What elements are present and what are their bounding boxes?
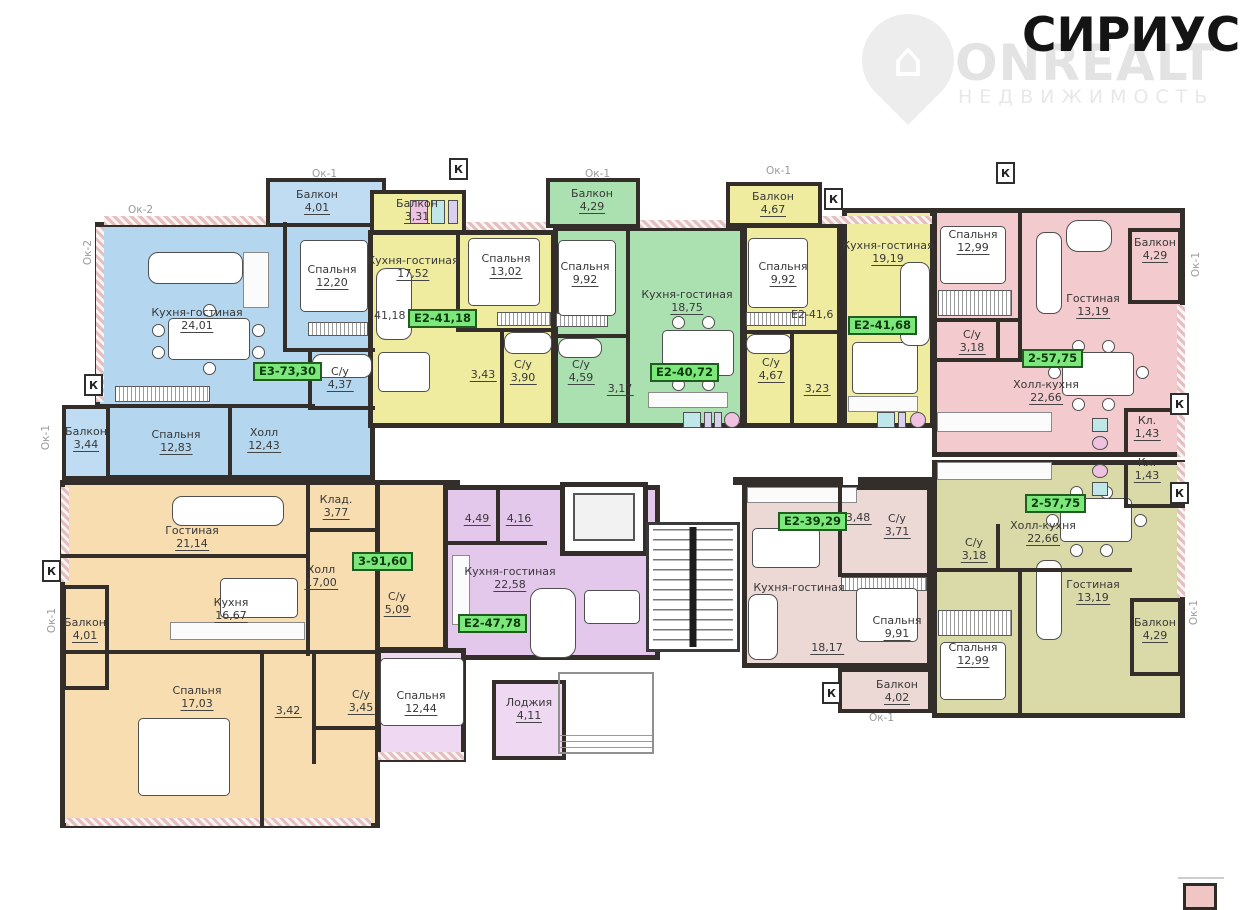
wardrobe [938, 610, 1012, 636]
wall [996, 322, 1000, 360]
room-label-hall-kitchen: Холл-кухня22,66 [1010, 519, 1076, 546]
apartment-badge-light-pink: Е2-39,29 [778, 512, 847, 531]
room-label-bathroom: С/у3,18 [959, 328, 986, 355]
chair [672, 316, 685, 329]
room-label-bathroom: С/у3,71 [884, 512, 911, 539]
chair [152, 346, 165, 359]
room-label-balcony: Балкон4,01 [64, 616, 106, 643]
room-label-kitchen-living: Кухня-гостиная22,58 [464, 565, 555, 592]
room-label-bathroom: С/у4,37 [327, 365, 354, 392]
wall [838, 573, 932, 577]
vent-marker-k: К [42, 560, 61, 582]
room-label-bedroom: Спальня9,92 [759, 260, 808, 287]
room-label-closet: Кл.1,43 [1134, 414, 1161, 441]
armchair [1066, 220, 1112, 252]
watermark-subtitle: НЕДВИЖИМОСТЬ [958, 86, 1214, 108]
room-label-balcony: Балкон4,67 [752, 190, 794, 217]
wall [932, 318, 1022, 322]
washer-icon [1092, 464, 1108, 478]
cabinet-icon [448, 200, 458, 224]
room-label-living: Гостиная13,19 [1066, 578, 1120, 605]
wall [260, 654, 264, 828]
window-label: Ок-1 [1188, 600, 1200, 625]
wall [932, 568, 1132, 572]
room-label-balcony: Балкон4,29 [571, 187, 613, 214]
floor-plan: ⌂ ONREALT НЕДВИЖИМОСТЬ СИРИУС [0, 0, 1251, 910]
chair [252, 324, 265, 337]
bed [138, 718, 230, 796]
apartment-badge-yellow-c: Е2-41,68 [848, 316, 917, 335]
cabinet-icon [704, 412, 712, 428]
wardrobe [308, 322, 368, 336]
stair-divider [690, 527, 697, 647]
chair [1102, 340, 1115, 353]
window-label: Ок-1 [766, 165, 791, 177]
bathtub [504, 332, 552, 354]
wall [1124, 460, 1128, 508]
exterior-wall-hatch [66, 818, 371, 826]
cabinet-icon [898, 412, 906, 428]
wall [996, 524, 1000, 570]
apartment-badge-yellow-a: Е2-41,18 [408, 309, 477, 328]
sofa [1036, 560, 1062, 640]
sofa [748, 594, 778, 660]
room-label-bathroom: С/у3,18 [961, 536, 988, 563]
wall [228, 404, 232, 480]
room-label-bedroom: Спальня13,02 [482, 252, 531, 279]
vent-marker-k: К [822, 682, 841, 704]
room-label-hall: Холл17,00 [304, 563, 338, 590]
washer-icon [910, 412, 926, 428]
room-label-kitchen-living-area: 18,17 [810, 641, 844, 655]
wall [283, 222, 287, 352]
bathtub [746, 334, 792, 354]
exterior-wall-hatch [1177, 305, 1185, 457]
room-label-hall: 3,43 [470, 368, 497, 382]
apartment-badge-green: Е2-40,72 [650, 363, 719, 382]
vent-marker-k: К [1170, 482, 1189, 504]
vent-marker-k: К [84, 374, 103, 396]
wall [308, 406, 375, 410]
room-label-bathroom: С/у5,09 [384, 590, 411, 617]
exterior-wall-hatch [640, 220, 726, 228]
wall [60, 650, 380, 654]
room-label-balcony: Балкон4,29 [1134, 616, 1176, 643]
wall [60, 554, 310, 558]
wall [283, 348, 375, 352]
dining-table [378, 352, 430, 392]
room-label-bedroom: Спальня9,91 [873, 614, 922, 641]
room-label-living: Гостиная13,19 [1066, 292, 1120, 319]
wardrobe [497, 312, 551, 326]
room-label-hall: 3,17 [607, 382, 634, 396]
chair [1134, 514, 1147, 527]
apartment-badge-pink: 2-57,75 [1022, 349, 1083, 368]
house-icon: ⌂ [862, 14, 954, 106]
room-label-bedroom: Спальня12,44 [397, 689, 446, 716]
wall [733, 477, 843, 485]
exterior-wall-hatch [378, 752, 464, 760]
sofa [172, 496, 284, 526]
room-label-bedroom: Спальня12,99 [949, 228, 998, 255]
room-label-kitchen-living: Кухня-гостиная19,19 [842, 239, 933, 266]
sink-icon [1092, 418, 1108, 432]
chair [1136, 366, 1149, 379]
wall [310, 528, 378, 532]
exterior-wall-hatch [104, 216, 266, 225]
room-label-kitchen-living: Кухня-гостиная18,75 [641, 288, 732, 315]
room-label-bathroom: С/у4,59 [568, 358, 595, 385]
apartment-badge-blue: Е3-73,30 [253, 362, 322, 381]
elevator-cabin [573, 493, 635, 541]
wall [312, 654, 316, 764]
room-label-hall: 3,48 [845, 511, 872, 525]
window-label: Ок-1 [312, 168, 337, 180]
room-label-bedroom: Спальня9,92 [561, 260, 610, 287]
room-label-bedroom: Спальня17,03 [173, 684, 222, 711]
wall [496, 485, 500, 543]
dining-table [852, 342, 918, 394]
room-label-balcony: Балкон3,44 [65, 425, 107, 452]
vent-marker-k: К [824, 188, 843, 210]
apartment-badge-orange: 3-91,60 [352, 552, 413, 571]
room-label-living: Гостиная21,14 [165, 524, 219, 551]
window-label: Ок-1 [46, 608, 58, 633]
wall [312, 726, 375, 730]
room-label-hall: 4,49 [464, 512, 491, 526]
room-label-kitchen-living: Кухня-гостиная24,01 [151, 306, 242, 333]
entrance-porch [558, 672, 654, 754]
window-label: Ок-2 [128, 204, 153, 216]
wall [858, 477, 935, 485]
chair [1102, 398, 1115, 411]
room-label-bathroom: 4,16 [506, 512, 533, 526]
bathtub [558, 338, 602, 358]
room-label-hall: Холл12,43 [247, 426, 281, 453]
window-label: Ок-2 [82, 240, 94, 265]
sofa [530, 588, 576, 658]
wall [456, 328, 556, 332]
wall [500, 332, 504, 428]
window-label: Ок-1 [40, 425, 52, 450]
window-label: Ок-1 [585, 168, 610, 180]
cabinet-icon [714, 412, 722, 428]
wall [932, 358, 1022, 362]
stray-area-label: 41,18 [374, 309, 406, 322]
wall [1018, 208, 1022, 360]
chair [1100, 544, 1113, 557]
room-label-kitchen-living: Кухня-гостиная17,52 [367, 254, 458, 281]
stairwell [646, 522, 740, 652]
wall [95, 404, 315, 408]
wall [626, 226, 630, 428]
apartment-badge-olive: 2-57,75 [1025, 494, 1086, 513]
vent-marker-k: К [1170, 393, 1189, 415]
room-label-balcony: Балкон3,31 [396, 197, 438, 224]
chair [203, 362, 216, 375]
wall [443, 541, 547, 545]
room-label-kitchen: Кухня16,67 [214, 596, 249, 623]
room-label-loggia: Лоджия4,11 [506, 696, 552, 723]
chair [252, 346, 265, 359]
stray-apartment-label: Е2-41,6 [791, 308, 833, 321]
kitchen-counter [937, 462, 1052, 480]
room-label-bathroom: С/у3,45 [348, 688, 375, 715]
room-label-hall-kitchen: Холл-кухня22,66 [1013, 378, 1079, 405]
wall [1124, 504, 1185, 508]
kitchen-counter [937, 412, 1052, 432]
window-label: Ок-1 [869, 712, 894, 724]
room-label-wardrobe: 3,42 [275, 704, 302, 718]
exterior-wall-hatch [822, 216, 932, 224]
room-label-balcony: Балкон4,29 [1134, 236, 1176, 263]
wall [553, 334, 630, 338]
wall [838, 485, 842, 577]
watermark-pin-icon: ⌂ [843, 0, 973, 125]
wardrobe [115, 386, 210, 402]
room-label-bathroom: С/у4,67 [758, 356, 785, 383]
sink-icon [877, 412, 895, 428]
elevator-shaft [560, 482, 648, 556]
washer-icon [1092, 436, 1108, 450]
dining-table [752, 528, 820, 568]
washer-icon [724, 412, 740, 428]
sofa [1036, 232, 1062, 314]
wall [1124, 412, 1128, 457]
room-label-bathroom: С/у3,90 [510, 358, 537, 385]
dining-table [584, 590, 640, 624]
window-label: Ок-1 [1190, 252, 1202, 277]
vent-marker-k: К [449, 158, 468, 180]
room-label-bedroom: Спальня12,99 [949, 641, 998, 668]
wardrobe [938, 290, 1012, 316]
developer-logo: СИРИУС [1022, 8, 1240, 63]
vent-marker-k: К [996, 162, 1015, 184]
kitchen-counter [848, 396, 918, 412]
apartment-badge-purple: Е2-47,78 [458, 614, 527, 633]
cutoff-plan-fragment [1183, 883, 1217, 910]
room-label-bedroom: Спальня12,20 [308, 263, 357, 290]
room-label-balcony: Балкон4,01 [296, 188, 338, 215]
room-label-closet: Клад.3,77 [320, 493, 353, 520]
exterior-wall-hatch [61, 487, 69, 582]
room-label-closet: Кл.1,43 [1134, 456, 1161, 483]
wall [308, 352, 312, 410]
kitchen-counter [170, 622, 305, 640]
chair [702, 316, 715, 329]
sink-icon [1092, 482, 1108, 496]
kitchen-counter [243, 252, 269, 308]
room-label-kitchen-living: Кухня-гостиная [753, 581, 844, 594]
kitchen-counter [648, 392, 728, 408]
exterior-wall-hatch [466, 222, 546, 230]
wall [790, 334, 794, 428]
room-label-hall: 3,23 [804, 382, 831, 396]
room-label-balcony: Балкон4,02 [876, 678, 918, 705]
wall [1018, 572, 1022, 718]
cutoff-line [1178, 877, 1224, 879]
room-label-bedroom: Спальня12,83 [152, 428, 201, 455]
sink-icon [683, 412, 701, 428]
sofa [148, 252, 243, 284]
